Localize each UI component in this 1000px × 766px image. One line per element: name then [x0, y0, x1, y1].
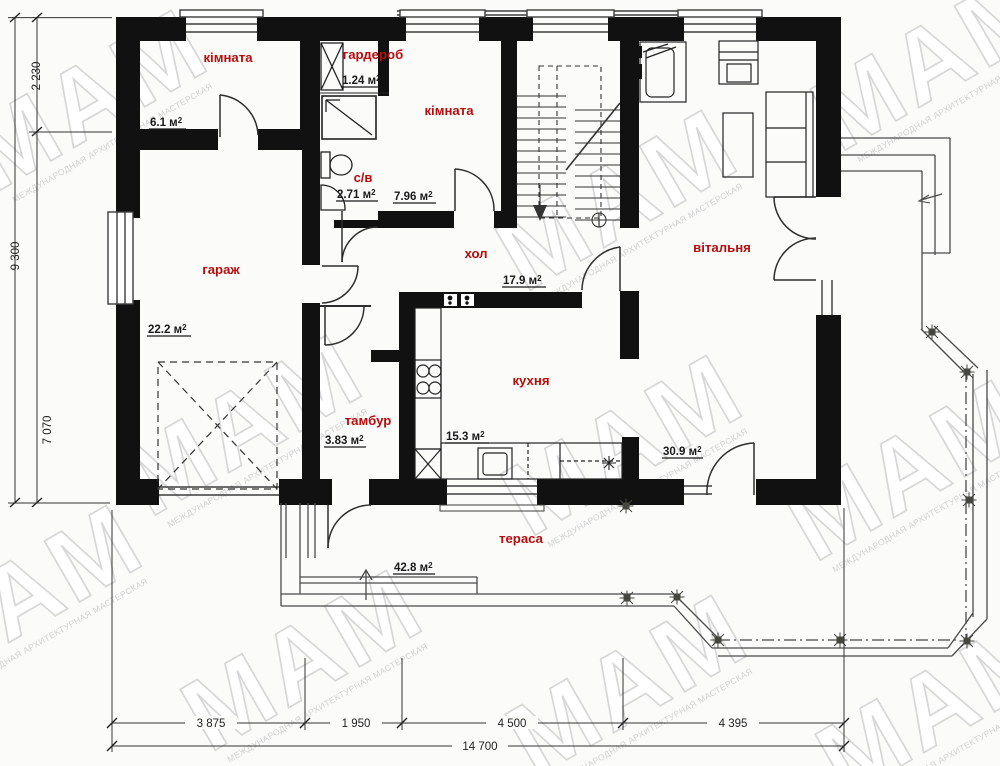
svg-text:7.96 м2: 7.96 м2: [394, 190, 433, 203]
svg-text:14 700: 14 700: [462, 741, 497, 753]
svg-text:1.24 м2: 1.24 м2: [342, 74, 381, 87]
svg-text:42.8 м2: 42.8 м2: [394, 561, 433, 574]
svg-text:вітальня: вітальня: [693, 240, 751, 255]
svg-text:3 875: 3 875: [197, 718, 226, 730]
svg-text:4 395: 4 395: [719, 718, 748, 730]
svg-text:хол: хол: [464, 246, 487, 261]
svg-text:тераса: тераса: [499, 531, 544, 546]
svg-text:2 230: 2 230: [31, 62, 43, 91]
svg-text:2.71 м2: 2.71 м2: [337, 188, 376, 201]
svg-text:кухня: кухня: [512, 373, 549, 388]
svg-text:15.3 м2: 15.3 м2: [446, 430, 485, 443]
svg-text:4 500: 4 500: [498, 718, 527, 730]
svg-text:7 070: 7 070: [42, 416, 54, 445]
svg-text:с/в: с/в: [354, 170, 373, 185]
svg-text:гараж: гараж: [202, 262, 240, 277]
svg-text:22.2 м2: 22.2 м2: [148, 323, 187, 336]
svg-text:гардероб: гардероб: [343, 47, 404, 62]
svg-text:кімната: кімната: [203, 50, 253, 65]
svg-text:кімната: кімната: [424, 103, 474, 118]
svg-text:тамбур: тамбур: [345, 413, 392, 428]
svg-text:30.9 м2: 30.9 м2: [663, 445, 702, 458]
svg-text:17.9 м2: 17.9 м2: [503, 274, 542, 287]
svg-text:1 950: 1 950: [342, 718, 371, 730]
svg-text:9 300: 9 300: [10, 242, 22, 271]
svg-text:3.83 м2: 3.83 м2: [325, 434, 364, 447]
